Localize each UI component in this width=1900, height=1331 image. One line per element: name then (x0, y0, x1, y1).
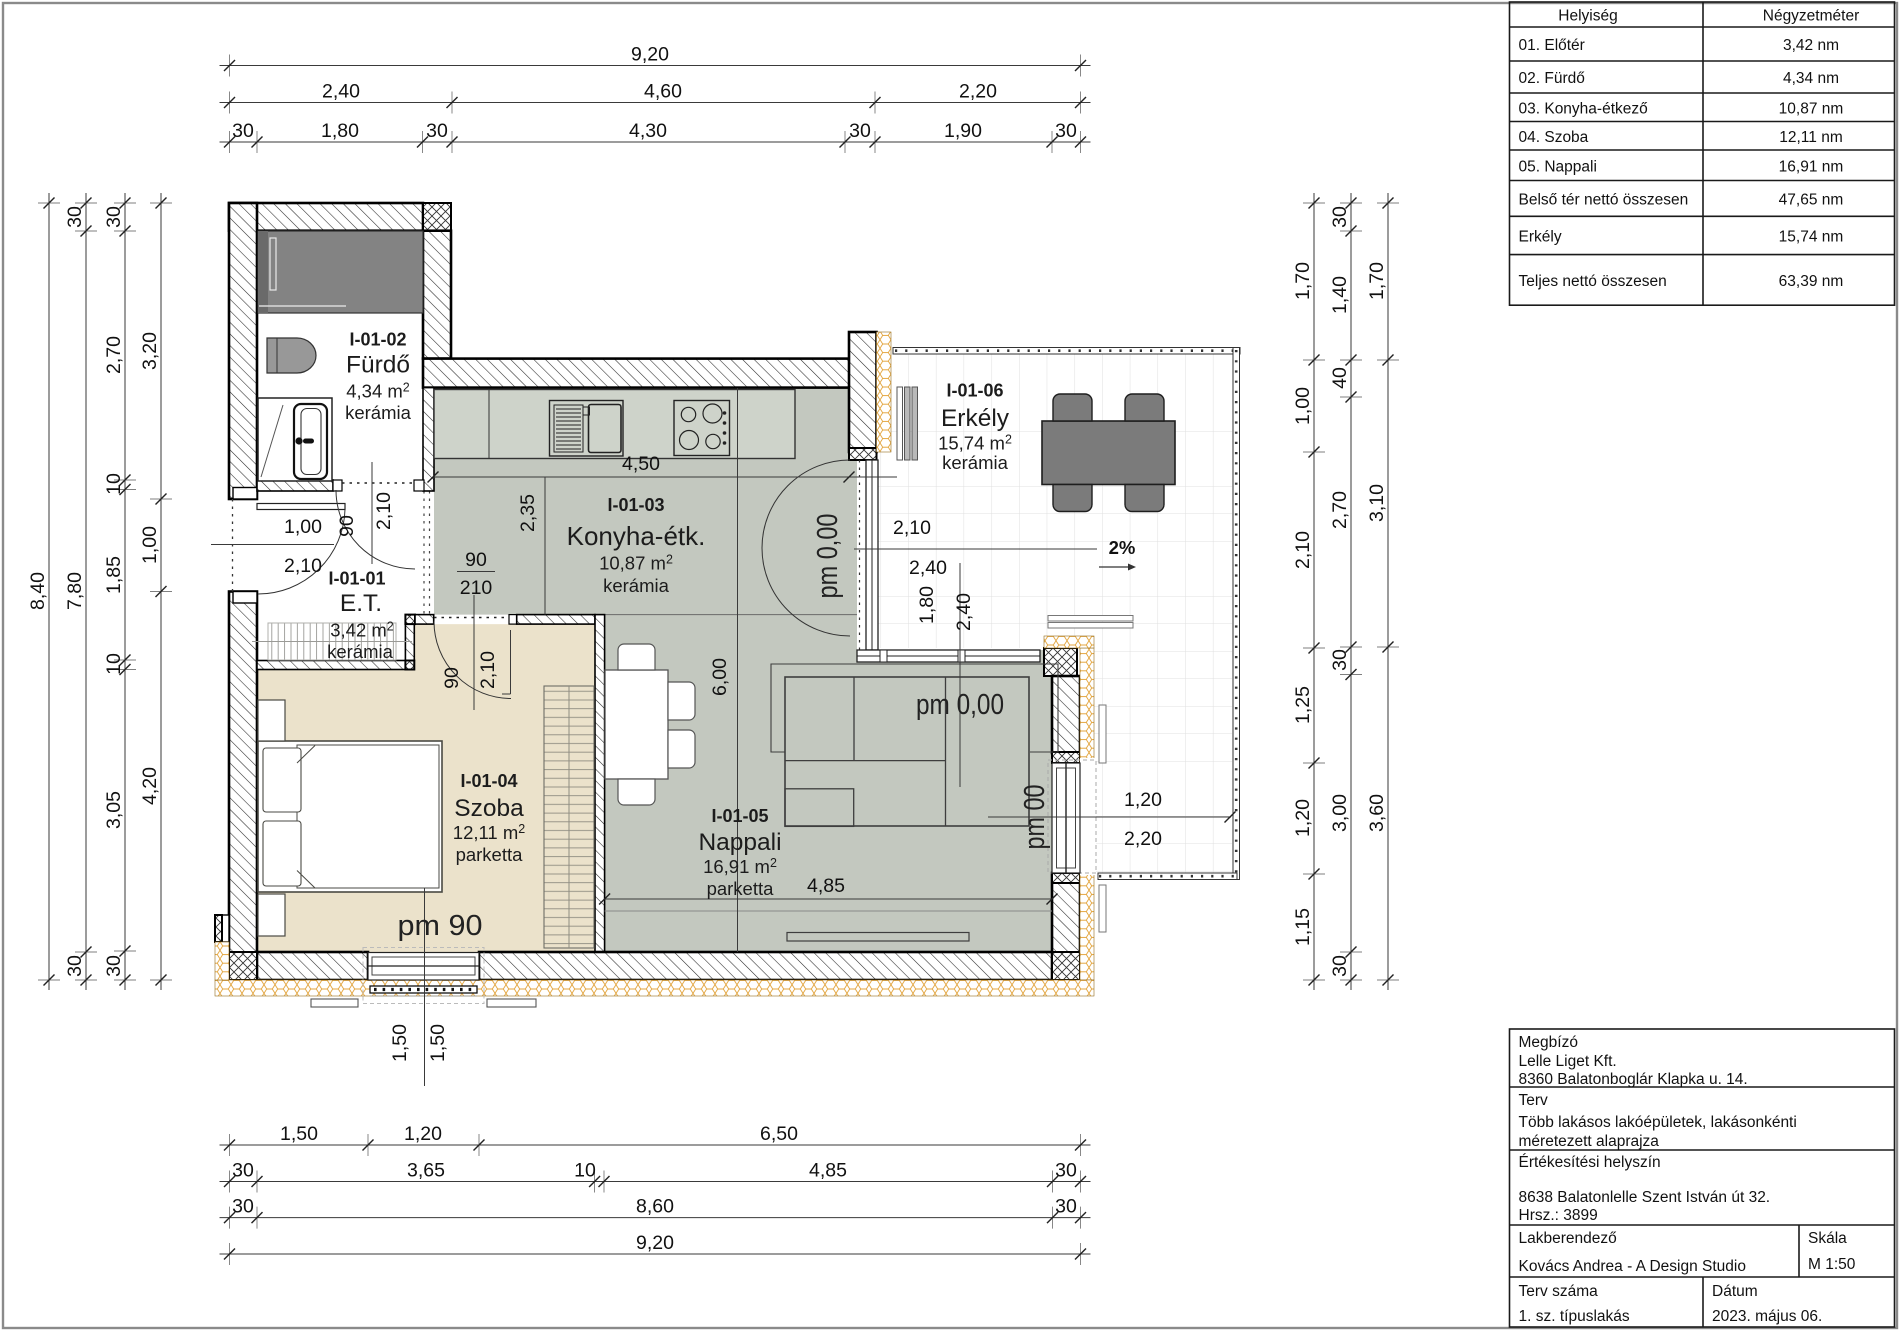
svg-text:05. Nappali: 05. Nappali (1519, 158, 1597, 175)
svg-text:1,50: 1,50 (280, 1123, 318, 1145)
svg-text:kerámia: kerámia (942, 452, 1009, 473)
svg-text:2,40: 2,40 (953, 593, 975, 631)
svg-text:Értékesítési helyszín: Értékesítési helyszín (1519, 1154, 1661, 1171)
svg-text:30: 30 (1055, 1160, 1077, 1182)
svg-text:2,10: 2,10 (1292, 531, 1314, 569)
svg-text:90: 90 (336, 515, 358, 537)
svg-text:4,30: 4,30 (629, 120, 667, 142)
svg-text:2%: 2% (1109, 537, 1136, 558)
svg-text:8,60: 8,60 (636, 1196, 674, 1218)
svg-text:kerámia: kerámia (345, 402, 412, 423)
svg-text:30: 30 (64, 955, 86, 977)
svg-text:40: 40 (1329, 367, 1351, 389)
svg-text:47,65 nm: 47,65 nm (1779, 191, 1844, 208)
svg-text:I-01-04: I-01-04 (460, 771, 517, 791)
svg-text:8,40: 8,40 (27, 572, 49, 610)
svg-text:3,20: 3,20 (139, 332, 161, 370)
svg-text:Teljes nettó összesen: Teljes nettó összesen (1519, 273, 1667, 290)
svg-text:Hrsz.: 3899: Hrsz.: 3899 (1519, 1207, 1598, 1224)
svg-text:Erkély: Erkély (941, 405, 1010, 432)
svg-text:16,91 nm: 16,91 nm (1779, 158, 1844, 175)
svg-text:10,87 nm: 10,87 nm (1779, 100, 1844, 117)
svg-text:03. Konyha-étkező: 03. Konyha-étkező (1519, 100, 1648, 117)
svg-text:parketta: parketta (456, 844, 524, 865)
svg-text:pm 90: pm 90 (398, 910, 483, 942)
svg-text:Négyzetméter: Négyzetméter (1763, 8, 1859, 25)
svg-text:Dátum: Dátum (1712, 1283, 1758, 1300)
svg-text:30: 30 (64, 206, 86, 228)
svg-text:4,50: 4,50 (622, 453, 660, 475)
svg-text:30: 30 (232, 1160, 254, 1182)
svg-text:Konyha-étk.: Konyha-étk. (567, 521, 706, 551)
svg-text:1,15: 1,15 (1292, 908, 1314, 946)
svg-text:12,11 nm: 12,11 nm (1779, 129, 1842, 146)
svg-text:Nappali: Nappali (698, 829, 781, 856)
svg-text:2023. május 06.: 2023. május 06. (1712, 1308, 1822, 1325)
svg-text:30: 30 (849, 120, 871, 142)
svg-text:pm 0,00: pm 0,00 (916, 689, 1004, 721)
svg-text:méretezett alaprajza: méretezett alaprajza (1519, 1133, 1660, 1150)
svg-text:16,91 m2: 16,91 m2 (703, 856, 777, 877)
svg-text:Terv: Terv (1519, 1092, 1549, 1109)
svg-text:2,10: 2,10 (284, 555, 322, 577)
svg-text:2,70: 2,70 (1329, 491, 1351, 529)
svg-text:4,60: 4,60 (644, 81, 682, 103)
svg-text:Fürdő: Fürdő (346, 352, 410, 379)
svg-text:30: 30 (1055, 120, 1077, 142)
svg-text:1. sz. típuslakás: 1. sz. típuslakás (1519, 1308, 1630, 1325)
svg-text:I-01-03: I-01-03 (607, 495, 664, 515)
svg-text:1,80: 1,80 (916, 586, 938, 624)
svg-text:1,50: 1,50 (389, 1024, 411, 1062)
svg-text:2,35: 2,35 (517, 494, 539, 532)
svg-text:I-01-02: I-01-02 (349, 330, 406, 350)
svg-text:30: 30 (1329, 955, 1351, 977)
svg-text:Lakberendező: Lakberendező (1519, 1230, 1617, 1247)
svg-text:2,20: 2,20 (959, 81, 997, 103)
svg-text:1,85: 1,85 (103, 556, 125, 594)
svg-text:1,20: 1,20 (1292, 799, 1314, 837)
svg-text:10: 10 (103, 473, 125, 495)
svg-text:9,20: 9,20 (636, 1232, 674, 1254)
svg-text:90: 90 (465, 549, 487, 571)
svg-text:30: 30 (1055, 1196, 1077, 1218)
svg-text:10: 10 (103, 653, 125, 675)
svg-text:10,87 m2: 10,87 m2 (599, 553, 673, 574)
svg-text:30: 30 (232, 120, 254, 142)
svg-text:E.T.: E.T. (340, 590, 382, 617)
svg-text:7,80: 7,80 (64, 572, 86, 610)
svg-text:30: 30 (232, 1196, 254, 1218)
svg-text:Lelle Liget Kft.: Lelle Liget Kft. (1519, 1053, 1617, 1070)
svg-text:63,39 nm: 63,39 nm (1779, 273, 1844, 290)
svg-text:4,85: 4,85 (809, 1160, 847, 1182)
svg-text:4,34 nm: 4,34 nm (1783, 70, 1839, 87)
svg-text:2,70: 2,70 (103, 336, 125, 374)
svg-text:3,42 m2: 3,42 m2 (330, 619, 394, 640)
svg-text:1,40: 1,40 (1329, 276, 1351, 314)
svg-text:01. Előtér: 01. Előtér (1519, 37, 1585, 54)
svg-text:Belső tér nettó összesen: Belső tér nettó összesen (1519, 191, 1689, 208)
svg-text:12,11 m2: 12,11 m2 (453, 822, 525, 843)
svg-text:kerámia: kerámia (603, 575, 670, 596)
svg-text:2,40: 2,40 (909, 557, 947, 579)
svg-text:10: 10 (574, 1160, 596, 1182)
svg-text:1,20: 1,20 (1124, 789, 1162, 811)
svg-text:4,20: 4,20 (139, 767, 161, 805)
svg-text:30: 30 (1329, 206, 1351, 228)
svg-text:Megbízó: Megbízó (1519, 1034, 1578, 1051)
svg-text:30: 30 (426, 120, 448, 142)
svg-text:1,25: 1,25 (1292, 686, 1314, 724)
svg-text:1,50: 1,50 (427, 1024, 449, 1062)
svg-text:02. Fürdő: 02. Fürdő (1519, 70, 1585, 87)
svg-text:9,20: 9,20 (631, 44, 669, 66)
svg-text:1,00: 1,00 (139, 526, 161, 564)
svg-text:I-01-05: I-01-05 (711, 806, 768, 826)
svg-text:30: 30 (103, 955, 125, 977)
svg-text:Helyiség: Helyiség (1558, 8, 1617, 25)
svg-text:Skála: Skála (1808, 1230, 1847, 1247)
svg-text:1,90: 1,90 (944, 120, 982, 142)
svg-text:8360 Balatonboglár Klapka u. 1: 8360 Balatonboglár Klapka u. 14. (1519, 1071, 1748, 1088)
svg-text:1,70: 1,70 (1366, 262, 1388, 300)
svg-text:90: 90 (441, 667, 463, 689)
svg-text:pm 00: pm 00 (1019, 785, 1051, 850)
svg-text:parketta: parketta (707, 878, 775, 899)
svg-text:4,85: 4,85 (807, 875, 845, 897)
svg-text:210: 210 (460, 577, 493, 599)
svg-text:kerámia: kerámia (327, 641, 394, 662)
svg-text:4,34 m2: 4,34 m2 (346, 381, 410, 402)
svg-text:1,70: 1,70 (1292, 262, 1314, 300)
svg-text:04. Szoba: 04. Szoba (1519, 129, 1589, 146)
svg-text:Több lakásos lakóépületek, lak: Több lakásos lakóépületek, lakásonkénti (1519, 1114, 1797, 1131)
svg-text:30: 30 (103, 206, 125, 228)
svg-text:3,10: 3,10 (1366, 484, 1388, 522)
svg-text:1,80: 1,80 (321, 120, 359, 142)
svg-text:M 1:50: M 1:50 (1808, 1256, 1856, 1273)
svg-text:2,20: 2,20 (1124, 828, 1162, 850)
svg-text:8638 Balatonlelle Szent István: 8638 Balatonlelle Szent István út 32. (1519, 1189, 1771, 1206)
svg-text:pm 0,00: pm 0,00 (812, 514, 844, 599)
svg-text:3,42 nm: 3,42 nm (1783, 37, 1839, 54)
svg-text:3,05: 3,05 (103, 791, 125, 829)
svg-text:1,20: 1,20 (404, 1123, 442, 1145)
svg-text:6,00: 6,00 (709, 658, 731, 696)
svg-text:I-01-06: I-01-06 (946, 381, 1003, 401)
svg-text:15,74 m2: 15,74 m2 (938, 432, 1012, 453)
svg-text:I-01-01: I-01-01 (328, 569, 385, 589)
svg-text:2,10: 2,10 (893, 517, 931, 539)
svg-text:Kovács Andrea - A Design Studi: Kovács Andrea - A Design Studio (1519, 1258, 1746, 1275)
svg-text:15,74 nm: 15,74 nm (1779, 228, 1844, 245)
svg-text:2,10: 2,10 (373, 492, 395, 530)
svg-text:Terv száma: Terv száma (1519, 1283, 1599, 1300)
svg-text:3,65: 3,65 (407, 1160, 445, 1182)
svg-text:2,40: 2,40 (322, 81, 360, 103)
svg-text:Szoba: Szoba (454, 795, 524, 822)
svg-text:1,00: 1,00 (284, 516, 322, 538)
svg-text:1,00: 1,00 (1292, 387, 1314, 425)
svg-text:Erkély: Erkély (1519, 228, 1562, 245)
svg-text:6,50: 6,50 (760, 1123, 798, 1145)
svg-text:30: 30 (1329, 649, 1351, 671)
svg-text:3,60: 3,60 (1366, 794, 1388, 832)
svg-text:2,10: 2,10 (477, 651, 499, 689)
svg-text:3,00: 3,00 (1329, 794, 1351, 832)
